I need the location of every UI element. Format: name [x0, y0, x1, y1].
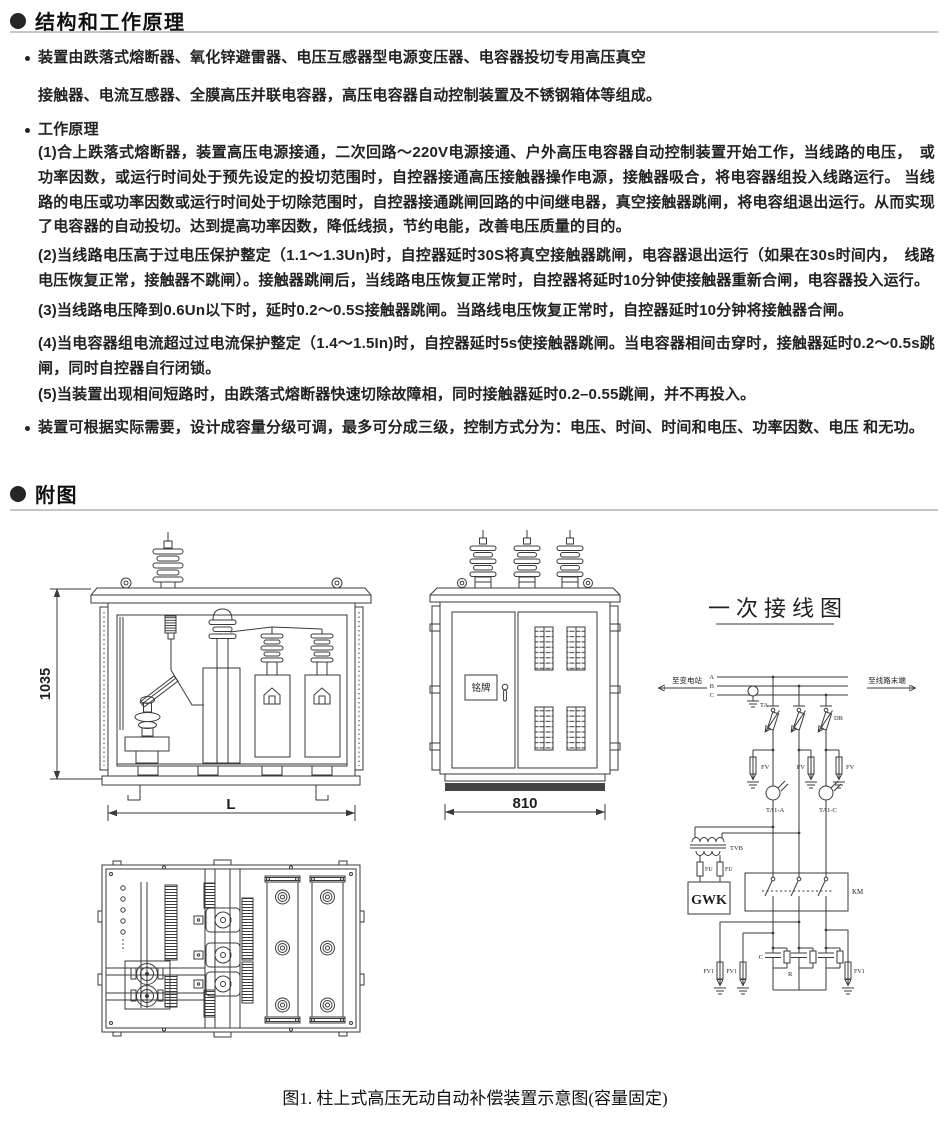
ventilation-louvers	[535, 627, 585, 750]
to-line-end-label: 至线路末端	[868, 675, 906, 685]
cabinet-base	[445, 774, 605, 791]
tank-outline	[98, 860, 364, 1037]
door-handle	[502, 684, 508, 701]
cabinet-body	[430, 602, 620, 774]
surge-arresters-fv: FV FV FV	[747, 749, 855, 788]
section-divider	[10, 509, 938, 511]
center-bushing-column	[203, 609, 322, 763]
ta1-a-label: TA1-A	[766, 807, 785, 814]
nameplate-label: 铭牌	[471, 682, 491, 694]
nameplate: 铭牌	[465, 675, 497, 700]
current-transformers: TA1-A TA1-C	[766, 750, 841, 814]
paragraph-step-2: (2)当线路电压高于过电压保护整定（1.1～1.3Un)时，自控器延时30S将真…	[38, 244, 935, 294]
front-view-drawing: 1035	[40, 528, 380, 824]
resistor-label: R	[788, 971, 793, 978]
dropout-fuse-assembly	[125, 616, 204, 763]
controller-gwk: GWK	[688, 882, 730, 914]
tvb-label: TVB	[730, 845, 744, 852]
dim-width-label: 810	[512, 795, 537, 812]
diagram-title: 一次接线图	[708, 596, 848, 621]
ta1-c-label: TA1-C	[819, 807, 837, 814]
roof-bushing-2	[514, 530, 540, 588]
fv1-label: FV1	[726, 969, 737, 975]
capacitor-unit-2	[305, 629, 340, 757]
roof-bushing-3	[557, 530, 583, 588]
cabinet-base	[102, 764, 360, 800]
fu-label: FU	[705, 867, 713, 873]
dimension-width: 810	[445, 795, 605, 820]
capacitor-bank: C R	[759, 947, 843, 990]
dim-height-label: 1035	[40, 668, 54, 700]
fu-label: FU	[725, 867, 733, 873]
terminal-row	[121, 886, 125, 949]
bus-lines: A B C 至变电站 至线路末端	[659, 674, 915, 699]
side-view-drawing: 铭牌 810	[425, 528, 630, 824]
diagram-title-group: 一次接线图	[708, 596, 848, 624]
section-bullet-icon	[10, 13, 26, 29]
section-title-figures: 附图	[35, 479, 78, 508]
figure-caption: 图1. 柱上式高压无动自动补偿装置示意图(容量固定)	[0, 1084, 950, 1109]
phase-b-label: B	[710, 683, 715, 690]
cabinet-roof	[91, 578, 371, 603]
fv-label: FV	[797, 764, 806, 771]
paragraph-components-1: 装置由跌落式熔断器、氧化锌避雷器、电压互感器型电源变压器、电容器投切专用高压真空	[38, 46, 935, 71]
to-substation-label: 至变电站	[672, 675, 702, 685]
fv1-label: FV1	[854, 969, 865, 975]
dimension-height: 1035	[40, 588, 102, 780]
wiring-diagram: 一次接线图 A B C 至变电站 至线路末端 TA	[650, 560, 950, 1035]
paragraph-step-5: (5)当装置出现相间短路时，由跌落式熔断器快速切除故障相，同时接触器延时0.2–…	[38, 383, 935, 408]
paragraph-capacity-note: 装置可根据实际需要，设计成容量分级可调，最多可分成三级，控制方式分为：电压、时间…	[38, 416, 935, 441]
roof-bushing	[153, 532, 183, 588]
paragraph-step-4: (4)当电容器组电流超过过电流保护整定（1.4～1.5In)时，自控器延时5s使…	[38, 332, 935, 382]
section-header-figures: 附图	[10, 479, 78, 508]
capacitor-label: C	[759, 954, 763, 961]
paragraph-step-1: (1)合上跌落式熔断器，装置高压电源接通，二次回路～220V电源接通、户外高压电…	[38, 141, 935, 240]
fv-label: FV	[846, 764, 855, 771]
top-view-drawing	[95, 858, 375, 1043]
dim-length-label: L	[226, 796, 235, 813]
section-bullet-icon	[10, 486, 26, 502]
contactor-km: KM	[745, 873, 864, 951]
dropout-fuses: DR	[766, 676, 844, 750]
paragraph-working-principle-title: 工作原理	[38, 118, 935, 143]
gwk-label: GWK	[691, 893, 727, 908]
fv-label: FV	[761, 764, 770, 771]
voltage-transformer-ta: TA	[747, 686, 768, 709]
section-divider	[10, 31, 938, 33]
catalog-page: 结构和工作原理 装置由跌落式熔断器、氧化锌避雷器、电压互感器型电源变压器、电容器…	[0, 0, 950, 1125]
fv1-label: FV1	[703, 969, 714, 975]
capacitor-tank-1	[265, 876, 300, 1023]
km-label: KM	[852, 888, 864, 896]
capacitor-unit-1	[255, 627, 290, 757]
phase-a-label: A	[709, 674, 714, 681]
dr-label: DR	[834, 715, 844, 722]
center-bushing-pads	[194, 908, 240, 996]
roof-bushing-1	[470, 530, 496, 588]
capacitor-tank-2	[310, 876, 345, 1023]
paragraph-step-3: (3)当线路电压降到0.6Un以下时，延时0.2～0.5S接触器跳闸。当路线电压…	[38, 299, 935, 324]
paragraph-components-2: 接触器、电流互感器、全膜高压并联电容器，高压电容器自动控制装置及不锈钢箱体等组成…	[38, 84, 935, 109]
phase-c-label: C	[710, 692, 714, 699]
